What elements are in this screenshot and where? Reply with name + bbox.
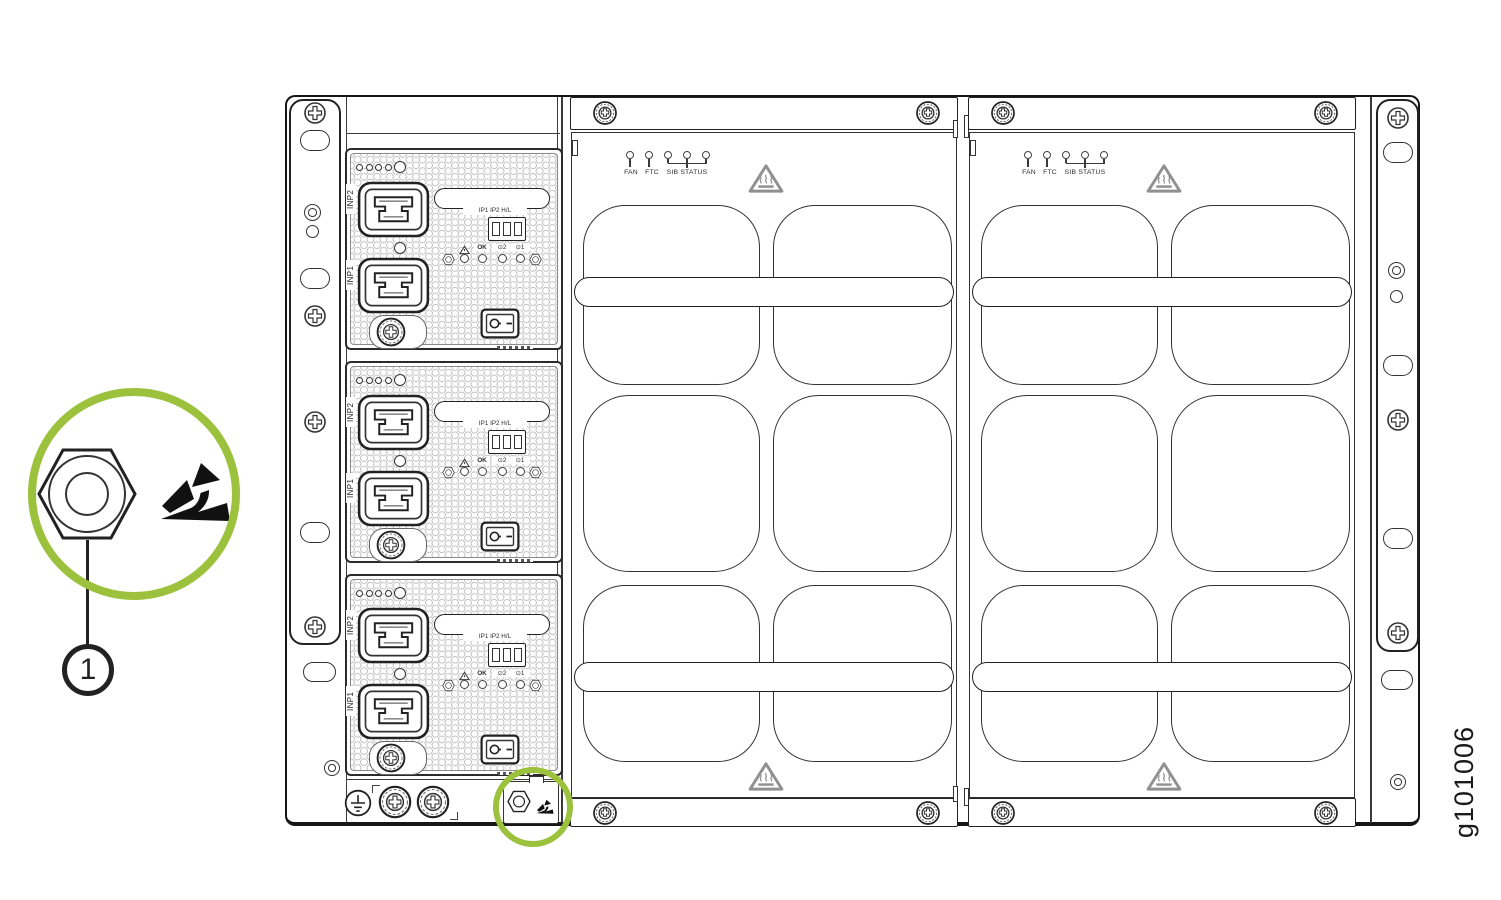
flange-screw-icon xyxy=(1387,107,1409,129)
led-ok-label: OK xyxy=(474,670,490,677)
right-body-edge xyxy=(1370,97,1372,823)
flange-screw-icon xyxy=(304,616,326,638)
psu-vent-hole xyxy=(356,377,363,384)
psu-vent-hole xyxy=(366,164,373,171)
led-fan xyxy=(626,151,634,159)
fan-tray-handle[interactable] xyxy=(574,277,954,307)
psu-mount-hole xyxy=(394,587,406,599)
figure-id-label: g101006 xyxy=(1449,726,1480,838)
grounding-terminal-icon xyxy=(344,789,372,817)
figure-chassis-rear-view: 1 INP2 INP1 IP1 IP2 H/L OK xyxy=(0,0,1501,900)
led-ftc-label: FTC xyxy=(640,169,664,176)
hot-surface-warning-icon xyxy=(747,163,785,194)
captive-screw[interactable] xyxy=(1314,801,1338,825)
flange-screw-icon xyxy=(304,411,326,433)
ac-inlet-inp1 xyxy=(357,470,430,527)
psu-mount-hole xyxy=(394,161,406,173)
led-outlet2-label: ⊙2 xyxy=(492,244,512,251)
power-supply-slot-2: INP2 INP1 IP1 IP2 H/L OK ⊙2 ⊙1 xyxy=(345,361,563,563)
callout-number-badge: 1 xyxy=(62,644,114,696)
hot-surface-warning-icon xyxy=(1145,163,1183,194)
hex-nut-icon xyxy=(442,254,455,265)
psu-vent-hole xyxy=(375,377,382,384)
chassis-edge-slot xyxy=(1381,670,1413,690)
led-ok xyxy=(478,467,487,476)
led-sib-3 xyxy=(702,151,710,159)
callout-highlight-circle-large xyxy=(28,388,240,600)
fan-tray-left-top-strip xyxy=(570,97,958,130)
captive-screw[interactable] xyxy=(916,101,940,125)
screw-bracket-mark xyxy=(450,812,458,820)
psu-mount-hole xyxy=(394,455,406,467)
dip-switch-label: IP1 IP2 H/L xyxy=(463,421,527,428)
outlet2-number: 2 xyxy=(503,670,507,677)
led-ok-label: OK xyxy=(474,244,490,251)
left-mounting-flange xyxy=(289,99,341,645)
captive-screw[interactable] xyxy=(916,801,940,825)
outlet1-number: 1 xyxy=(521,457,525,464)
led-stem xyxy=(648,159,649,167)
chassis-screw[interactable] xyxy=(378,785,412,819)
fan-tray-handle[interactable] xyxy=(972,662,1352,692)
inlet-inp2-label: INP2 xyxy=(346,610,356,640)
captive-screw[interactable] xyxy=(1314,101,1338,125)
ac-inlet-inp2 xyxy=(357,181,430,238)
led-sib-2 xyxy=(1081,151,1089,159)
led-ok xyxy=(478,254,487,263)
hex-nut-icon xyxy=(442,680,455,691)
hex-nut-icon xyxy=(529,680,542,691)
dip-switch-block[interactable] xyxy=(488,643,526,667)
power-switch[interactable] xyxy=(480,521,520,552)
inlet-inp1-label: INP1 xyxy=(346,260,356,290)
led-bracket-stem xyxy=(1084,164,1085,169)
chassis-edge-hole xyxy=(324,760,340,776)
captive-screw[interactable] xyxy=(593,801,617,825)
psu-bay-top-line xyxy=(347,133,560,134)
flange-standoff xyxy=(1388,262,1405,279)
psu-mount-hole xyxy=(394,242,406,254)
led-warning xyxy=(460,680,469,689)
led-warning xyxy=(460,254,469,263)
ac-inlet-inp1 xyxy=(357,683,430,740)
fan-tray-handle[interactable] xyxy=(574,662,954,692)
hot-surface-warning-icon xyxy=(1145,761,1183,792)
flange-slot xyxy=(300,268,330,289)
outlet2-number: 2 xyxy=(503,244,507,251)
led-sib-1 xyxy=(664,151,672,159)
flange-standoff xyxy=(304,204,321,221)
ac-inlet-inp2 xyxy=(357,607,430,664)
led-sib-3 xyxy=(1100,151,1108,159)
led-ftc-label: FTC xyxy=(1038,169,1062,176)
hex-nut-icon xyxy=(442,467,455,478)
dip-switch-label: IP1 IP2 H/L xyxy=(463,634,527,641)
led-outlet1 xyxy=(516,254,525,263)
flange-hole xyxy=(306,225,319,238)
led-ftc xyxy=(645,151,653,159)
psu-vent-hole xyxy=(356,164,363,171)
led-sib-status-label: SIB STATUS xyxy=(664,169,710,176)
led-sib-status-label: SIB STATUS xyxy=(1062,169,1108,176)
callout-highlight-circle-small xyxy=(493,767,573,847)
captive-thumbscrew[interactable] xyxy=(376,743,406,773)
psu-vent-hole xyxy=(375,590,382,597)
flange-slot xyxy=(1383,142,1413,163)
psu-vent-hole xyxy=(385,164,392,171)
flange-screw-icon xyxy=(304,305,326,327)
led-outlet2 xyxy=(498,467,507,476)
fan-tray-right-bottom-strip xyxy=(968,798,1356,827)
fan-tray-left-bottom-strip xyxy=(570,798,958,827)
fan-tray-handle[interactable] xyxy=(972,277,1352,307)
outlet1-number: 1 xyxy=(521,670,525,677)
flange-hole xyxy=(1390,290,1403,303)
led-stem xyxy=(629,159,630,167)
captive-thumbscrew[interactable] xyxy=(376,530,406,560)
ac-inlet-inp1 xyxy=(357,257,430,314)
psu-handle-recess[interactable] xyxy=(434,188,550,209)
led-outlet1-label: ⊙1 xyxy=(510,244,530,251)
captive-screw[interactable] xyxy=(991,801,1015,825)
flange-slot xyxy=(1383,355,1413,376)
captive-screw[interactable] xyxy=(593,101,617,125)
chassis-screw[interactable] xyxy=(416,785,450,819)
inlet-inp2-label: INP2 xyxy=(346,397,356,427)
led-warning xyxy=(460,467,469,476)
psu-mount-hole xyxy=(394,374,406,386)
psu-vent-hole xyxy=(366,377,373,384)
panel-tab xyxy=(970,140,976,156)
led-outlet2-label: ⊙2 xyxy=(492,670,512,677)
power-switch[interactable] xyxy=(480,734,520,765)
psu-handle-recess[interactable] xyxy=(434,614,550,635)
captive-thumbscrew[interactable] xyxy=(376,317,406,347)
fan-opening xyxy=(773,395,952,572)
psu-handle-recess[interactable] xyxy=(434,401,550,422)
power-switch[interactable] xyxy=(480,308,520,339)
led-sib-1 xyxy=(1062,151,1070,159)
dip-switch-label: IP1 IP2 H/L xyxy=(463,208,527,215)
led-outlet1-label: ⊙1 xyxy=(510,670,530,677)
power-supply-slot-3: INP2 INP1 IP1 IP2 H/L OK ⊙2 ⊙1 xyxy=(345,574,563,776)
psu-vent-hole xyxy=(385,590,392,597)
led-ok xyxy=(478,680,487,689)
led-stem xyxy=(1046,159,1047,167)
captive-screw[interactable] xyxy=(991,101,1015,125)
fan-opening xyxy=(981,395,1158,572)
dip-switch-block[interactable] xyxy=(488,430,526,454)
psu-bottom-ticks xyxy=(497,346,533,349)
fan-tray-right-top-strip xyxy=(968,97,1356,130)
divider-tab xyxy=(953,120,958,138)
chassis-edge-hole xyxy=(1390,774,1406,790)
led-outlet1 xyxy=(516,467,525,476)
flange-screw-icon xyxy=(1387,409,1409,431)
hot-surface-warning-icon xyxy=(747,761,785,792)
hex-nut-icon xyxy=(529,254,542,265)
fan-opening xyxy=(1171,395,1350,572)
flange-slot xyxy=(300,130,330,151)
psu-vent-hole xyxy=(366,590,373,597)
psu-mount-hole xyxy=(394,668,406,680)
psu-vent-hole xyxy=(356,590,363,597)
led-bracket-stem xyxy=(686,164,687,169)
hex-nut-icon xyxy=(529,467,542,478)
led-outlet2 xyxy=(498,680,507,689)
fan-opening xyxy=(583,395,760,572)
flange-slot xyxy=(300,522,330,543)
flange-slot xyxy=(1383,528,1413,549)
led-ftc xyxy=(1043,151,1051,159)
inlet-inp1-label: INP1 xyxy=(346,686,356,716)
led-outlet2 xyxy=(498,254,507,263)
power-supply-slot-1: INP2 INP1 IP1 IP2 H/L OK ⊙2 ⊙1 xyxy=(345,148,563,350)
panel-tab xyxy=(572,140,578,156)
psu-vent-hole xyxy=(375,164,382,171)
led-outlet2-label: ⊙2 xyxy=(492,457,512,464)
led-ok-label: OK xyxy=(474,457,490,464)
inlet-inp1-label: INP1 xyxy=(346,473,356,503)
led-outlet1 xyxy=(516,680,525,689)
led-stem xyxy=(1027,159,1028,167)
divider-tab xyxy=(953,786,958,802)
callout-number: 1 xyxy=(80,653,97,687)
psu-vent-hole xyxy=(385,377,392,384)
ac-inlet-inp2 xyxy=(357,394,430,451)
flange-screw-icon xyxy=(304,102,326,124)
chassis-edge-slot xyxy=(303,662,336,682)
flange-screw-icon xyxy=(1387,622,1409,644)
led-fan xyxy=(1024,151,1032,159)
outlet2-number: 2 xyxy=(503,457,507,464)
led-outlet1-label: ⊙1 xyxy=(510,457,530,464)
inlet-inp2-label: INP2 xyxy=(346,184,356,214)
psu-bottom-ticks xyxy=(497,559,533,562)
dip-switch-block[interactable] xyxy=(488,217,526,241)
led-sib-2 xyxy=(683,151,691,159)
outlet1-number: 1 xyxy=(521,244,525,251)
